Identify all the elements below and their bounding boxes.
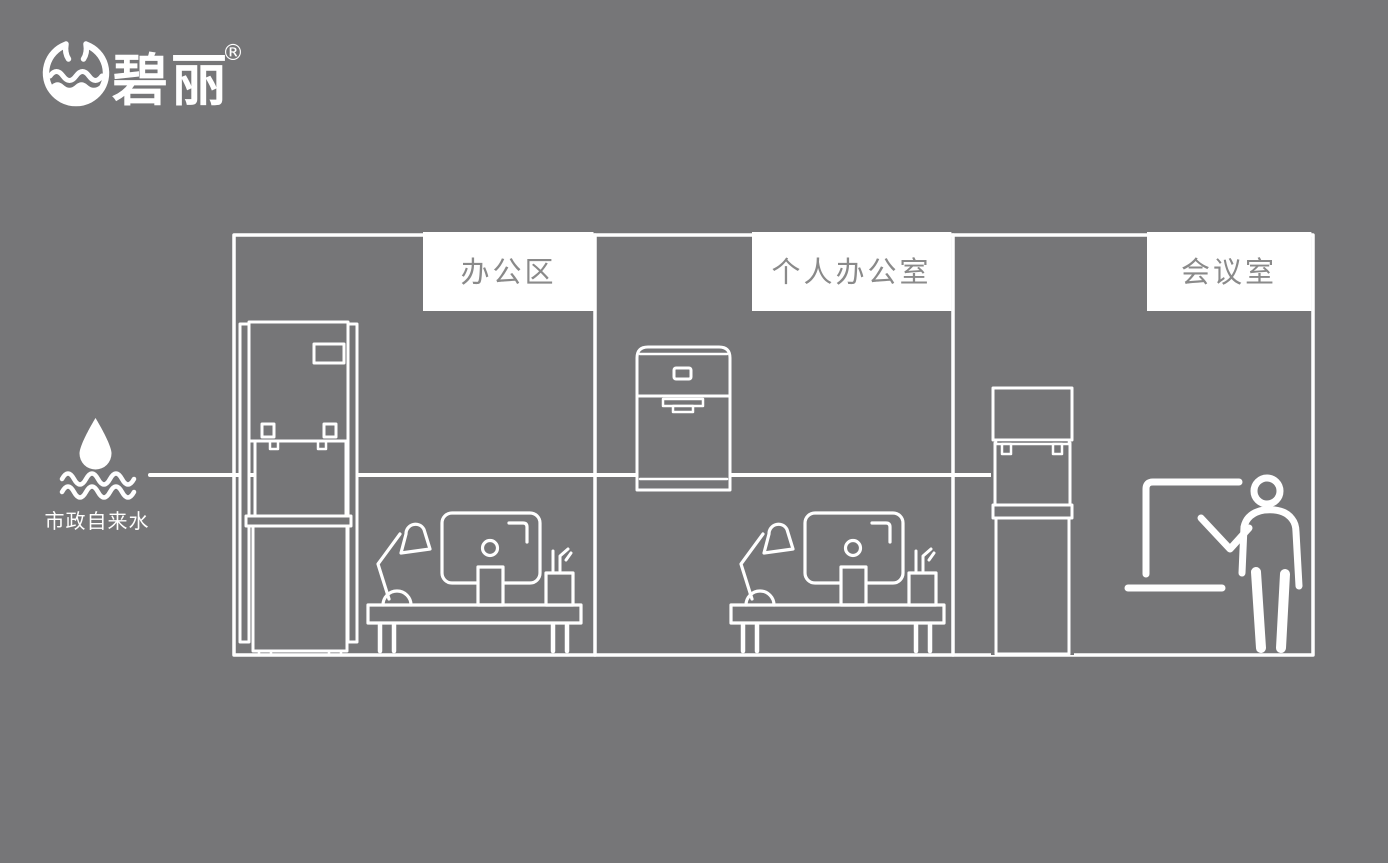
presenter-head xyxy=(1254,478,1280,504)
room-label-meeting-room: 会议室 xyxy=(1147,232,1311,311)
water-source-label: 市政自来水 xyxy=(45,509,150,533)
water-source: 市政自来水 xyxy=(45,418,150,533)
floor-standing-water-dispenser-icon xyxy=(240,322,357,655)
brand-logo-icon xyxy=(46,44,106,103)
room-label-private-office: 个人办公室 xyxy=(752,232,951,311)
whiteboard-icon xyxy=(1128,482,1239,588)
dispenser-tap-right xyxy=(1053,444,1062,454)
water-waves-icon xyxy=(62,474,134,498)
room-label-text: 办公区 xyxy=(460,255,556,289)
dispenser-tap-left xyxy=(1002,444,1011,454)
water-drop-icon xyxy=(80,418,112,470)
brand-logo: 碧丽 ® xyxy=(46,41,244,114)
presenter-leg-right xyxy=(1281,574,1285,648)
presenter-leg-left xyxy=(1256,572,1261,648)
room-label-text: 会议室 xyxy=(1181,255,1277,289)
upright-water-dispenser-icon xyxy=(991,386,1074,655)
water-supply-diagram: 碧丽 ® 市政自来水 xyxy=(0,0,1388,863)
room-label-text: 个人办公室 xyxy=(771,255,931,289)
presenter-body xyxy=(1242,510,1299,586)
registered-mark: ® xyxy=(222,41,244,66)
countertop-water-dispenser-icon xyxy=(637,347,730,490)
desk-office-area xyxy=(368,513,581,651)
room-label-office-area: 办公区 xyxy=(423,232,594,311)
presenter-icon xyxy=(1201,478,1299,648)
desk-private-office xyxy=(731,513,944,651)
brand-name: 碧丽 xyxy=(112,49,230,114)
